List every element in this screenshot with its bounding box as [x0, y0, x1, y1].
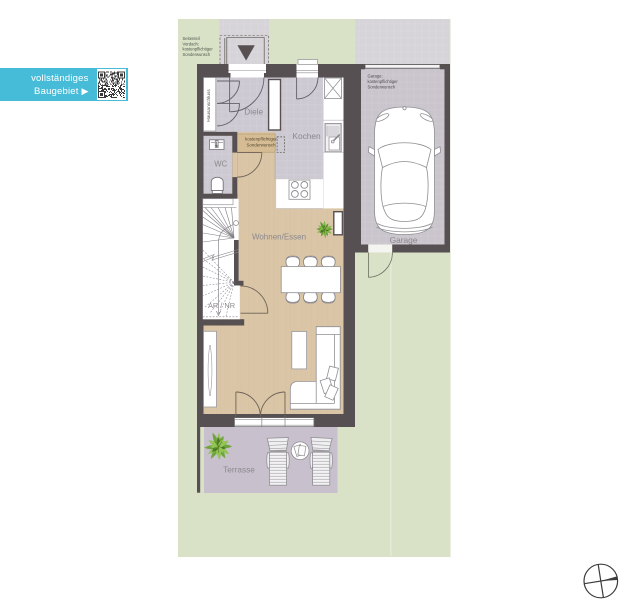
svg-text:AR / NR: AR / NR [208, 301, 235, 310]
svg-text:Vordach:: Vordach: [183, 41, 200, 46]
svg-text:Garage:: Garage: [368, 74, 383, 79]
svg-text:Sonderwunsch: Sonderwunsch [183, 52, 211, 57]
svg-text:Garage: Garage [390, 235, 418, 245]
svg-text:WC: WC [214, 159, 227, 168]
svg-text:Kochen: Kochen [292, 131, 321, 141]
svg-text:kostenpflichtiger: kostenpflichtiger [183, 47, 214, 52]
svg-text:Hausanschluss: Hausanschluss [206, 89, 212, 122]
svg-text:Sonderwunsch: Sonderwunsch [246, 142, 276, 147]
svg-text:kostenpflichtiger: kostenpflichtiger [245, 136, 277, 141]
svg-text:kostenpflichtiger: kostenpflichtiger [368, 79, 399, 84]
svg-text:Terrasse: Terrasse [223, 464, 255, 474]
svg-text:Wohnen/Essen: Wohnen/Essen [252, 232, 306, 241]
svg-text:Sonderwunsch: Sonderwunsch [368, 85, 396, 90]
svg-text:Seitenteil: Seitenteil [183, 36, 200, 41]
svg-text:Diele: Diele [244, 107, 263, 117]
